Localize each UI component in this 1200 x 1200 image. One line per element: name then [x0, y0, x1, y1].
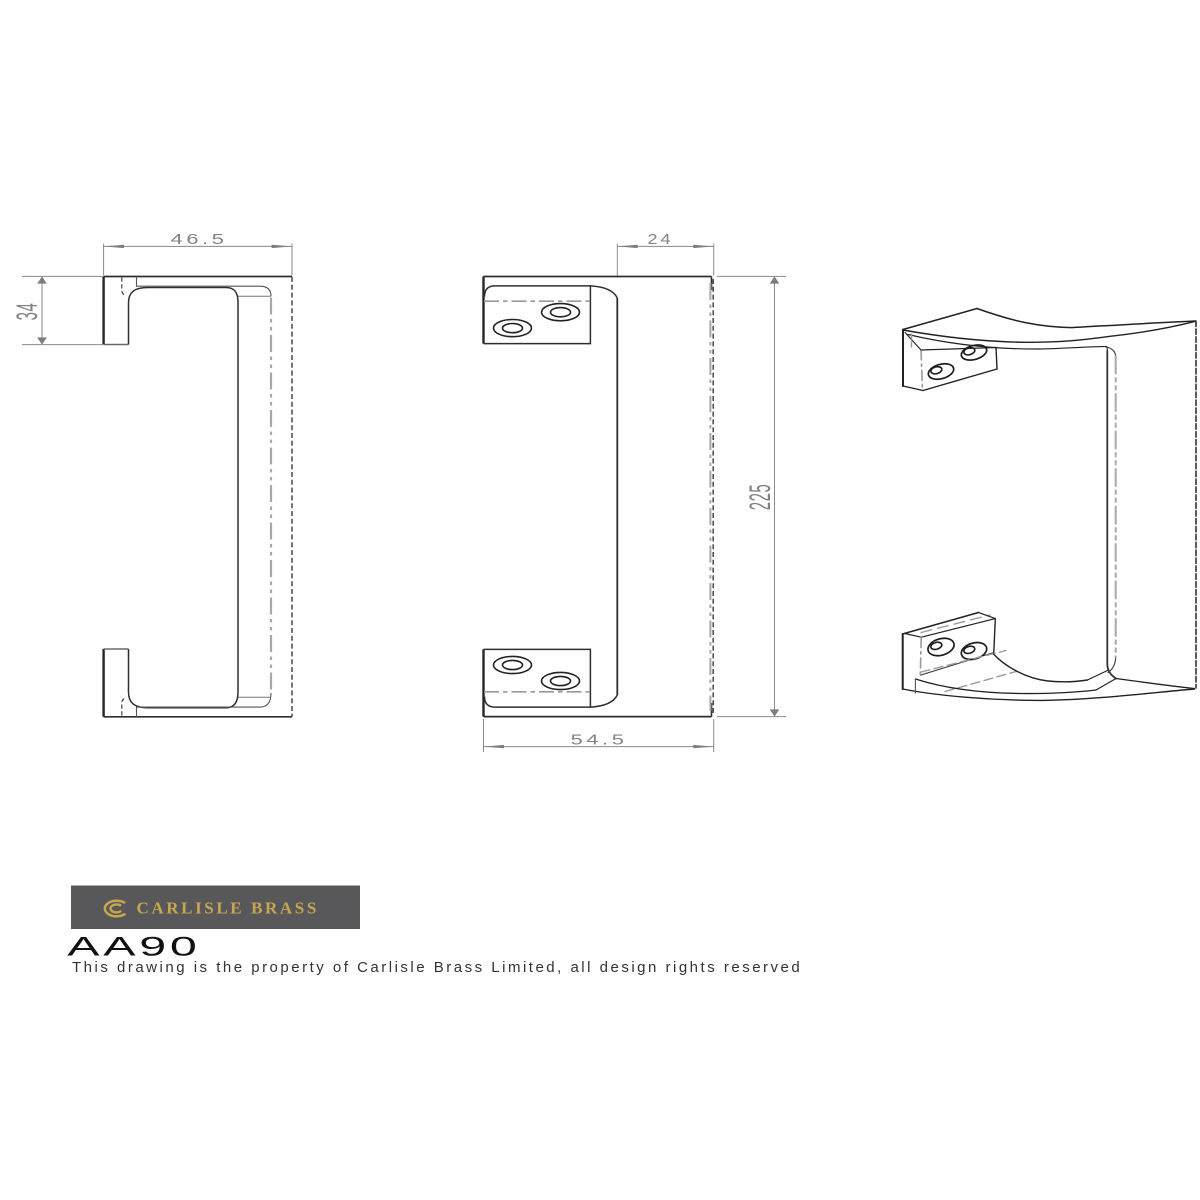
svg-text:46.5: 46.5	[171, 230, 228, 247]
svg-text:24: 24	[647, 230, 673, 247]
svg-text:AA90: AA90	[67, 932, 200, 961]
svg-text:This drawing is the property o: This drawing is the property of Carlisle…	[72, 959, 802, 976]
svg-text:34: 34	[11, 303, 44, 321]
svg-text:225: 225	[744, 484, 777, 511]
svg-text:54.5: 54.5	[571, 731, 628, 748]
svg-text:CARLISLE BRASS: CARLISLE BRASS	[137, 899, 319, 918]
